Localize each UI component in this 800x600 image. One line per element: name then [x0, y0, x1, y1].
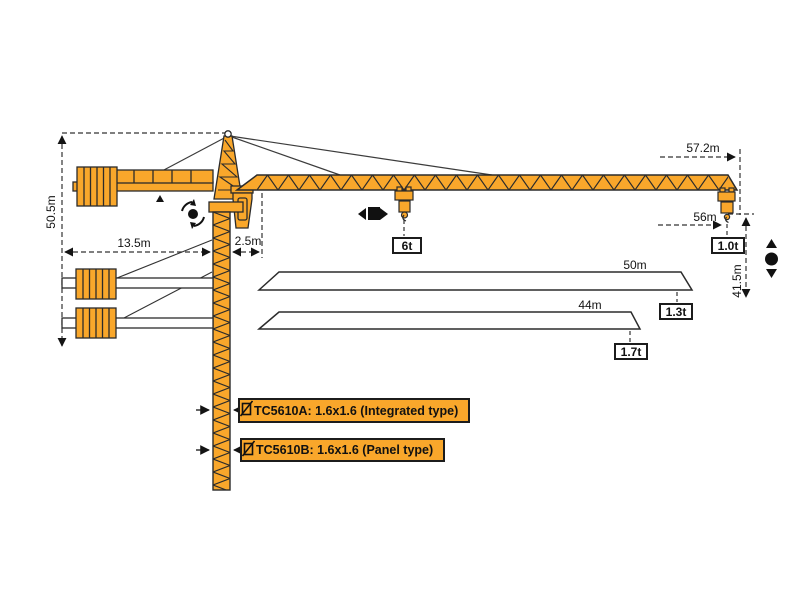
crane-drawing [0, 0, 800, 600]
slewing-platform [209, 202, 243, 212]
dim-counter-jib: 13.5m [106, 236, 162, 250]
dim-rear-clearance: 2.5m [220, 234, 276, 248]
apex-pin [225, 131, 231, 137]
support-marker [156, 195, 164, 202]
model-box-a: TC5610A: 1.6x1.6 (Integrated type) [238, 398, 470, 423]
counterweight-option-1 [62, 269, 213, 299]
main-jib [237, 175, 737, 190]
tower-mast [213, 212, 230, 490]
load-tip-50m: 1.3t [659, 303, 693, 320]
dim-jib-50: 50m [607, 258, 663, 272]
trolley-travel-symbol [358, 207, 388, 220]
model-a-label: TC5610A: 1.6x1.6 (Integrated type) [254, 404, 458, 418]
counter-jib [73, 167, 213, 206]
model-b-label: TC5610B: 1.6x1.6 (Panel type) [256, 443, 433, 457]
load-tip-57m: 1.0t [711, 237, 745, 254]
jib-option-50m [259, 272, 692, 290]
dim-total-height: 50.5m [44, 184, 58, 240]
jib-option-44m [259, 312, 640, 329]
load-tip-44m: 1.7t [614, 343, 648, 360]
tie-rods [162, 136, 492, 175]
trolley-hook [395, 187, 413, 221]
slewing-symbol [182, 199, 204, 229]
dim-hook-height: 41.5m [730, 253, 744, 309]
crane-diagram-canvas: 50.5m 13.5m 2.5m 57.2m 56m 41.5m 50m 44m… [0, 0, 800, 600]
dim-max-radius: 57.2m [675, 141, 731, 155]
dim-radius-56: 56m [677, 210, 733, 224]
counterweight [77, 167, 117, 206]
model-box-b: TC5610B: 1.6x1.6 (Panel type) [240, 438, 445, 462]
load-max: 6t [392, 237, 422, 254]
hoisting-symbol [765, 239, 778, 278]
dim-jib-44: 44m [562, 298, 618, 312]
counterweight-option-2 [62, 308, 213, 338]
